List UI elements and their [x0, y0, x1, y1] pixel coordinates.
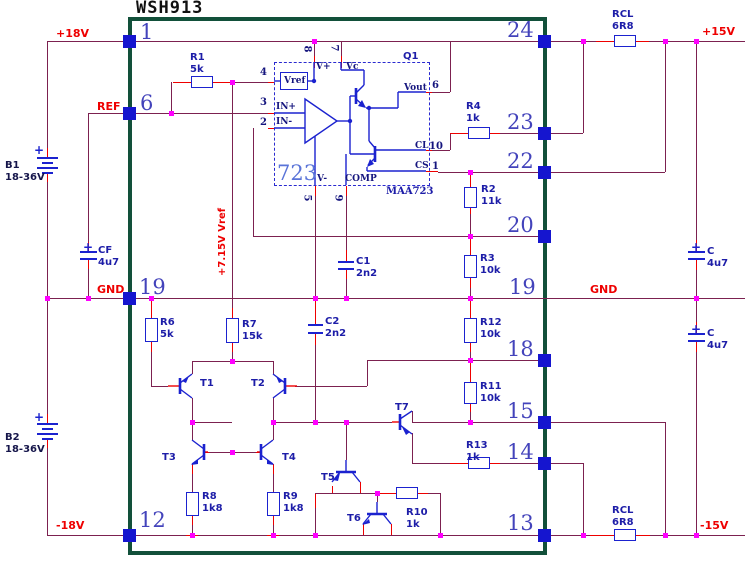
wire-lead	[315, 494, 316, 508]
wire	[273, 398, 274, 440]
junction-dot	[663, 533, 668, 538]
battery-b2-value: 18-36V	[5, 444, 45, 455]
r6-label: R6	[160, 317, 175, 328]
wire	[253, 236, 545, 237]
wire	[450, 133, 451, 150]
wire-lead	[635, 535, 650, 536]
wire	[583, 41, 584, 133]
wire-lead	[173, 82, 192, 83]
rcl-bottom-value: 6R8	[612, 517, 634, 528]
wire-lead	[490, 133, 500, 134]
wire	[346, 196, 347, 250]
pin-number: 20	[507, 215, 534, 236]
wire-lead	[151, 341, 152, 352]
t2-label: T2	[251, 378, 265, 389]
ic-cl-label: CL	[415, 142, 429, 151]
pin-22	[538, 166, 551, 179]
ic-comp-label: COMP	[345, 175, 377, 184]
c2-label: C2	[325, 316, 339, 327]
battery-b2-icon	[42, 438, 53, 440]
r2-value: 11k	[481, 196, 502, 207]
pin-24	[538, 35, 551, 48]
resistor-r1	[191, 76, 213, 88]
ic-vplus-label: V+	[316, 63, 331, 72]
wire-lead	[192, 515, 193, 525]
wire	[273, 422, 392, 423]
wire	[341, 41, 342, 56]
ic-pin3: 3	[260, 98, 267, 108]
wire	[151, 386, 168, 387]
cap-c1-icon	[338, 261, 354, 263]
t5-label: T5	[321, 472, 335, 483]
cap-c1-icon	[338, 268, 354, 270]
junction-dot	[468, 358, 473, 363]
plus-sign: +	[34, 411, 44, 423]
pin-number: 14	[507, 442, 534, 463]
wire-lead	[635, 41, 649, 42]
pin-number: 6	[140, 93, 153, 114]
wire-lead	[470, 299, 471, 318]
c-bottom-value: 4u7	[707, 340, 728, 351]
junction-dot	[86, 296, 91, 301]
transistor-t6	[362, 502, 392, 526]
wire-lead	[232, 342, 233, 352]
wire	[315, 508, 316, 535]
r6-value: 5k	[160, 329, 174, 340]
wire-lead	[315, 299, 316, 325]
wire	[450, 41, 451, 92]
net-label-gnd-left: GND	[97, 284, 124, 295]
pin-number: 23	[507, 112, 534, 133]
net-label-gnd-right: GND	[590, 284, 617, 295]
resistor-r4	[468, 127, 490, 139]
junction-dot	[694, 533, 699, 538]
cf-label: CF	[98, 245, 112, 256]
npn-arrow-icon	[267, 459, 274, 465]
junction-dot	[581, 39, 586, 44]
resistor-r12	[464, 318, 477, 343]
wire-lead	[315, 186, 316, 196]
wire	[583, 463, 584, 535]
wire-lead	[47, 439, 48, 448]
wire-lead	[346, 269, 347, 279]
junction-dot	[169, 111, 174, 116]
wire-lead	[232, 308, 233, 318]
junction-dot	[313, 420, 318, 425]
battery-b1-icon	[37, 167, 58, 169]
plus-sign: +	[34, 144, 44, 156]
net-label-minus18v: -18V	[56, 520, 84, 531]
battery-b1-label: B1	[5, 160, 20, 171]
ic-pin7: 7	[328, 45, 338, 52]
net-label-plus15v: +15V	[702, 26, 735, 37]
wire	[428, 493, 440, 494]
cf-value: 4u7	[98, 257, 119, 268]
junction-dot	[230, 450, 235, 455]
r13-label: R13	[466, 440, 488, 451]
wire	[665, 422, 666, 535]
wire	[295, 386, 367, 387]
q1-label: Q1	[403, 51, 418, 62]
wire-lead	[596, 41, 614, 42]
junction-dot	[375, 491, 380, 496]
ic-pin5: 5	[301, 195, 311, 202]
junction-dot	[344, 420, 349, 425]
wire-lead	[151, 299, 152, 318]
pin-number: 15	[507, 401, 534, 422]
junction-dot	[438, 533, 443, 538]
t1-label: T1	[200, 378, 214, 389]
wire-lead	[273, 515, 274, 525]
junction-dot	[468, 420, 473, 425]
junction-dot	[230, 359, 235, 364]
junction-dot	[271, 533, 276, 538]
transistor-t5	[331, 460, 361, 487]
rcl-top-value: 6R8	[612, 21, 634, 32]
resistor-r7	[226, 318, 239, 343]
r1-value: 5k	[190, 64, 204, 75]
junction-dot	[468, 170, 473, 175]
c-top-value: 4u7	[707, 258, 728, 269]
net-label-vref-rail: +7.15V Vref	[217, 186, 228, 276]
pin-12	[123, 529, 136, 542]
ic-pin8: 8	[301, 46, 311, 53]
transistor-t2	[269, 370, 297, 400]
ic-pin1: 1	[432, 162, 439, 172]
ic-vminus-label: V-	[317, 175, 327, 184]
wire-lead	[470, 207, 471, 214]
wire	[432, 92, 450, 93]
junction-dot	[313, 533, 318, 538]
r7-value: 15k	[242, 331, 263, 342]
wire-lead	[450, 133, 468, 134]
wire-lead	[88, 259, 89, 269]
resistor-r3	[464, 255, 477, 278]
r9-value: 1k8	[283, 503, 304, 514]
r10-label: R10	[406, 507, 428, 518]
battery-b2-label: B2	[5, 432, 20, 443]
pin-15	[538, 416, 551, 429]
r11-label: R11	[480, 381, 502, 392]
wire	[315, 345, 316, 422]
c2-value: 2n2	[325, 328, 346, 339]
ic-pin4: 4	[260, 68, 267, 78]
r1-label: R1	[190, 52, 205, 63]
wire	[253, 128, 254, 236]
c1-value: 2n2	[356, 268, 377, 279]
battery-b2-icon	[37, 433, 58, 435]
pin-19	[123, 292, 136, 305]
transistor-t3	[180, 438, 208, 468]
wire	[696, 41, 697, 240]
rcl-bottom-label: RCL	[612, 505, 633, 516]
wire	[171, 82, 172, 113]
pin-number: 19	[509, 277, 536, 298]
resistor-r2	[464, 187, 477, 208]
r2-label: R2	[481, 184, 496, 195]
wire	[192, 474, 193, 492]
pin-20	[538, 230, 551, 243]
wire-lead	[470, 342, 471, 352]
wire	[696, 352, 697, 535]
ic-pin9: 9	[332, 195, 342, 202]
r4-label: R4	[466, 101, 481, 112]
wire-lead	[418, 493, 428, 494]
pin-18	[538, 354, 551, 367]
junction-dot	[468, 234, 473, 239]
pin-number: 12	[139, 510, 166, 531]
cap-c2-icon	[308, 332, 323, 334]
junction-dot	[313, 296, 318, 301]
pin-number: 1	[140, 22, 153, 43]
wire-lead	[470, 403, 471, 412]
wire	[47, 448, 48, 536]
junction-dot	[312, 39, 317, 44]
ic-vout-label: Vout	[404, 84, 427, 93]
junction-dot	[190, 420, 195, 425]
cap-c-top-icon	[688, 258, 705, 260]
resistor-r8	[186, 492, 199, 516]
transistor-t4	[257, 438, 285, 468]
wire	[470, 214, 471, 236]
cap-c2-icon	[308, 324, 323, 326]
junction-dot	[694, 39, 699, 44]
wire	[367, 360, 368, 386]
wire	[665, 41, 666, 172]
r8-value: 1k8	[202, 503, 223, 514]
r11-value: 10k	[480, 393, 501, 404]
junction-dot	[230, 80, 235, 85]
r12-value: 10k	[480, 329, 501, 340]
wire-lead	[696, 341, 697, 352]
wire	[88, 269, 89, 298]
net-label-plus18v: +18V	[56, 28, 89, 39]
pin-number: 22	[507, 151, 534, 172]
resistor-r11	[464, 382, 477, 404]
c-top-label: C	[707, 246, 714, 257]
r12-label: R12	[480, 317, 502, 328]
wire	[412, 433, 413, 463]
wire	[696, 299, 697, 322]
r3-value: 10k	[480, 265, 501, 276]
c-bottom-label: C	[707, 328, 714, 339]
junction-dot	[663, 39, 668, 44]
pin-13	[538, 529, 551, 542]
ic-vc-label: Vc	[346, 63, 358, 72]
opamp-triangle-icon	[305, 99, 337, 143]
cap-c-bottom-icon	[688, 340, 705, 342]
r4-value: 1k	[466, 113, 480, 124]
cap-cf-icon	[80, 258, 97, 260]
resistor-rcl-bottom	[614, 529, 636, 541]
plus-sign: +	[83, 241, 93, 253]
pnp-arrow-icon	[276, 376, 283, 383]
ic-pin2: 2	[260, 118, 267, 128]
plus-sign: +	[691, 323, 701, 335]
wire	[696, 270, 697, 298]
wire	[315, 196, 316, 298]
ic-pin10: 10	[429, 142, 443, 152]
junction-dot	[581, 533, 586, 538]
resistor-r10	[396, 487, 418, 499]
r13-value: 1k	[466, 452, 480, 463]
wire-lead	[490, 463, 500, 464]
vref-block-label: Vref	[284, 77, 305, 86]
wire	[47, 41, 48, 148]
net-label-minus15v: -15V	[700, 520, 728, 531]
pin-14	[538, 457, 551, 470]
c1-label: C1	[356, 256, 370, 267]
wire	[192, 398, 193, 440]
resistor-r9	[267, 492, 280, 516]
wire-lead	[590, 535, 614, 536]
wire-lead	[315, 333, 316, 345]
wire-lead	[332, 486, 333, 493]
r7-label: R7	[242, 319, 257, 330]
junction-dot	[271, 420, 276, 425]
wire	[151, 352, 152, 386]
wire	[315, 493, 377, 494]
wire	[440, 493, 441, 535]
junction-dot	[344, 296, 349, 301]
wire	[273, 474, 274, 492]
wire	[192, 422, 232, 423]
ic-cs-label: CS	[415, 162, 429, 171]
t3-label: T3	[162, 452, 176, 463]
plus-sign: +	[691, 241, 701, 253]
ic-part-number: MAA723	[386, 186, 433, 197]
wire	[232, 82, 233, 308]
junction-dot	[45, 296, 50, 301]
ic-723-label: 723	[277, 163, 317, 183]
wire	[47, 535, 130, 536]
pin-23	[538, 127, 551, 140]
ic-inplus-label: IN+	[276, 103, 296, 112]
t7-label: T7	[395, 402, 409, 413]
resistor-r6	[145, 318, 158, 342]
r10-value: 1k	[406, 519, 420, 530]
r3-label: R3	[480, 253, 495, 264]
net-label-ref: REF	[97, 101, 121, 112]
pin-number: 19	[139, 277, 166, 298]
pnp-arrow-icon	[182, 376, 189, 383]
rcl-top-label: RCL	[612, 9, 633, 20]
junction-dot	[190, 533, 195, 538]
transistor-t1	[168, 370, 196, 400]
wire	[88, 113, 89, 242]
schematic-canvas: Vref	[0, 0, 747, 567]
pin-1	[123, 35, 136, 48]
wire	[232, 82, 268, 83]
wire	[346, 422, 347, 460]
ic-inminus-label: IN-	[276, 118, 292, 127]
wire-lead	[47, 173, 48, 182]
battery-b1-value: 18-36V	[5, 172, 45, 183]
wire-lead	[470, 360, 471, 383]
wire	[545, 422, 665, 423]
wire-lead	[470, 277, 471, 288]
pin-6	[123, 107, 136, 120]
pin-number: 13	[507, 513, 534, 534]
battery-b2-icon	[42, 428, 53, 430]
t6-label: T6	[347, 513, 361, 524]
schematic-title: WSH913	[136, 0, 203, 17]
battery-b1-icon	[42, 162, 53, 164]
r8-label: R8	[202, 491, 217, 502]
battery-b1-icon	[37, 157, 58, 159]
wire-lead	[696, 259, 697, 270]
r9-label: R9	[283, 491, 298, 502]
ic-pin6: 6	[432, 81, 439, 91]
wire-lead	[346, 186, 347, 196]
pin-number: 18	[507, 339, 534, 360]
pin-number: 24	[507, 20, 534, 41]
junction-dot	[694, 296, 699, 301]
wire	[412, 463, 450, 464]
resistor-rcl-top	[614, 35, 636, 47]
wire	[88, 113, 268, 114]
t4-label: T4	[282, 452, 296, 463]
wire-lead	[450, 463, 468, 464]
junction-dot	[468, 296, 473, 301]
